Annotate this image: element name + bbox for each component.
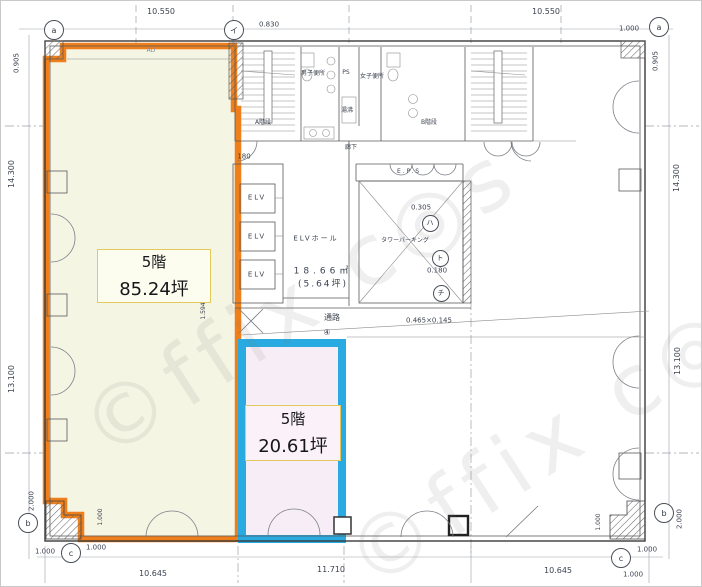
elv-hall-area-tsubo: (5.64坪) (298, 281, 348, 290)
elv-1-label: ELV (248, 195, 266, 202)
dim-top-right: 10.550 (532, 8, 560, 16)
eps-label: E.P.S (397, 169, 421, 175)
floor-plan-page: ©ffix c◎s ©ffix c◎s (0, 0, 702, 587)
dim-right-13100: 13.100 (674, 347, 682, 375)
dim-bl-1000a: 1.000 (35, 549, 55, 556)
grid-marker-to: ト (432, 250, 449, 267)
dim-right-2000: 2.000 (677, 509, 684, 529)
elv-3-label: ELV (248, 272, 266, 279)
elv-hall-label: ELVホール (293, 236, 338, 243)
dim-0180: 0.180 (427, 268, 447, 275)
dim-180: 180 (237, 154, 250, 161)
dim-0305: 0.305 (411, 205, 431, 212)
tower-parking-label: タワーパーキング (381, 238, 429, 244)
dim-right-14300: 14.300 (673, 164, 681, 192)
grid-marker-a-top-left: a (44, 20, 64, 40)
stair-a-label: A階段 (255, 120, 271, 126)
ps-shaft-label: PS (342, 70, 349, 76)
zone-b-floor: 5階 (281, 408, 306, 429)
grid-marker-b-left: b (18, 513, 38, 533)
grid-marker-a-top-right: a (649, 17, 669, 37)
grid-marker-ha: ハ (422, 215, 439, 232)
passage-dimension: 0.465×0.145 (406, 318, 452, 325)
zone-a-area-label: 5階 85.24坪 (97, 249, 211, 303)
womens-toilet-label: 女子便所 (360, 74, 384, 80)
passage-label: 通路 (324, 314, 340, 322)
dim-left-2000: 2.000 (29, 491, 36, 511)
stair-b-label: B階段 (421, 120, 437, 126)
dim-top-center: 0.830 (259, 22, 279, 29)
dim-top-1000: 1.000 (619, 26, 639, 33)
dim-left-13100: 13.100 (8, 365, 16, 393)
dim-bl-1000b: 1.000 (86, 545, 106, 552)
grid-marker-b-right: b (654, 503, 674, 523)
water-room-label: 湯沸 (341, 108, 353, 114)
grid-marker-chi: チ (433, 285, 450, 302)
dim-left-0905: 0.905 (14, 53, 21, 73)
dim-br-1000b: 1.000 (623, 572, 643, 579)
mens-toilet-label: 男子便所 (301, 71, 325, 77)
elv-2-label: ELV (248, 234, 266, 241)
dim-top-left: 10.550 (147, 8, 175, 16)
zone-a-area: 85.24坪 (119, 275, 189, 301)
zone-a-floor: 5階 (142, 251, 167, 272)
dim-br-1000v: 1.000 (596, 513, 602, 530)
dim-1594: 1.594 (201, 302, 207, 319)
passage-number: ④ (323, 329, 330, 337)
zone-b-area: 20.61坪 (258, 432, 328, 458)
grid-marker-c-left: c (61, 543, 81, 563)
dim-left-14300: 14.300 (8, 160, 16, 188)
grid-marker-i-top: イ (224, 20, 244, 40)
zone-b-area-label: 5階 20.61坪 (245, 405, 341, 461)
dim-right-0905: 0.905 (653, 51, 660, 71)
grid-marker-c-right: c (611, 548, 631, 568)
dim-bl-1000v: 1.000 (98, 508, 104, 525)
dim-bottom-center: 11.710 (317, 566, 345, 574)
ad-duct-label: AD (147, 48, 156, 54)
elv-hall-area-m2: 18.66㎡ (294, 268, 353, 277)
dim-bottom-right: 10.645 (544, 567, 572, 575)
corridor-label: 廊下 (345, 145, 357, 151)
dim-bottom-left: 10.645 (139, 570, 167, 578)
dim-br-1000a: 1.000 (637, 547, 657, 554)
